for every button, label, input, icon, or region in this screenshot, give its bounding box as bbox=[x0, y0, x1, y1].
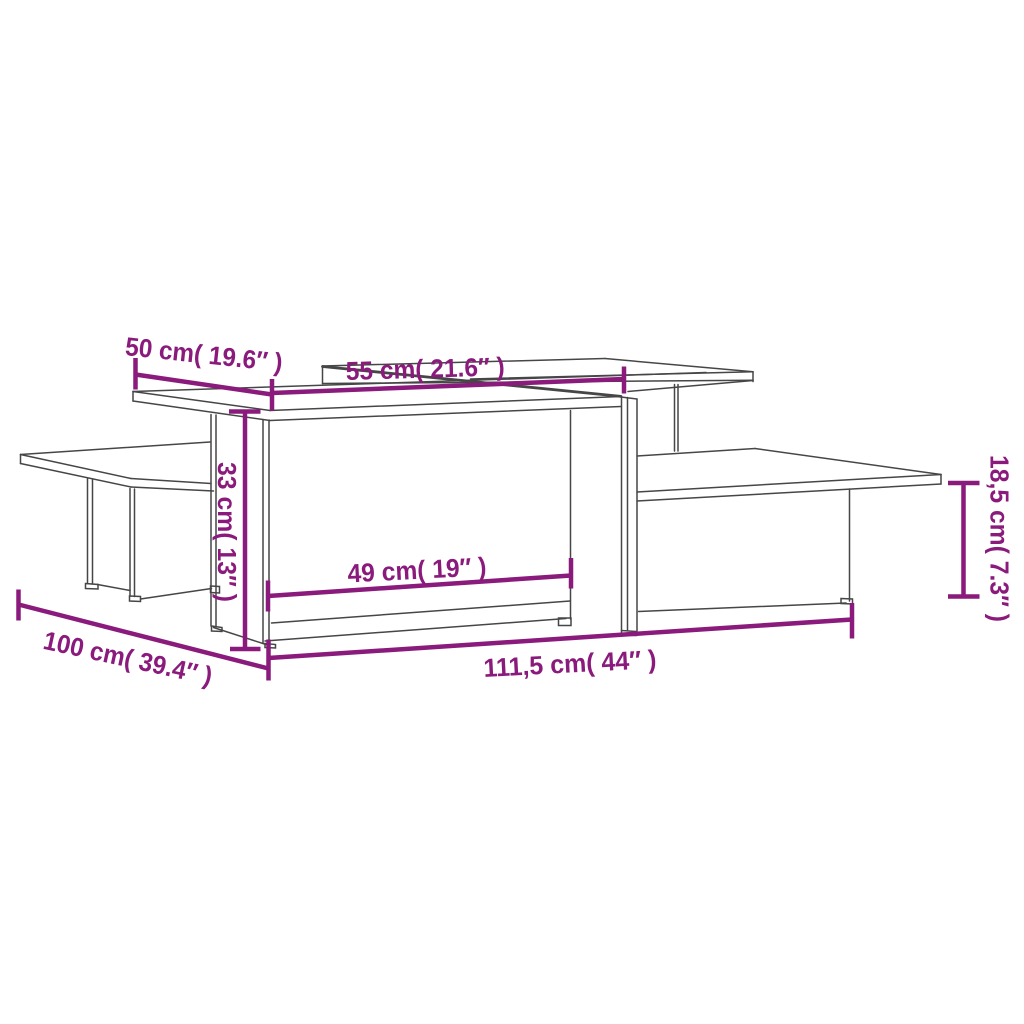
svg-text:33 cm( 13″ ): 33 cm( 13″ ) bbox=[212, 462, 242, 602]
svg-text:55 cm( 21.6″ ): 55 cm( 21.6″ ) bbox=[345, 351, 505, 386]
svg-text:18,5 cm( 7.3″ ): 18,5 cm( 7.3″ ) bbox=[985, 455, 1015, 622]
